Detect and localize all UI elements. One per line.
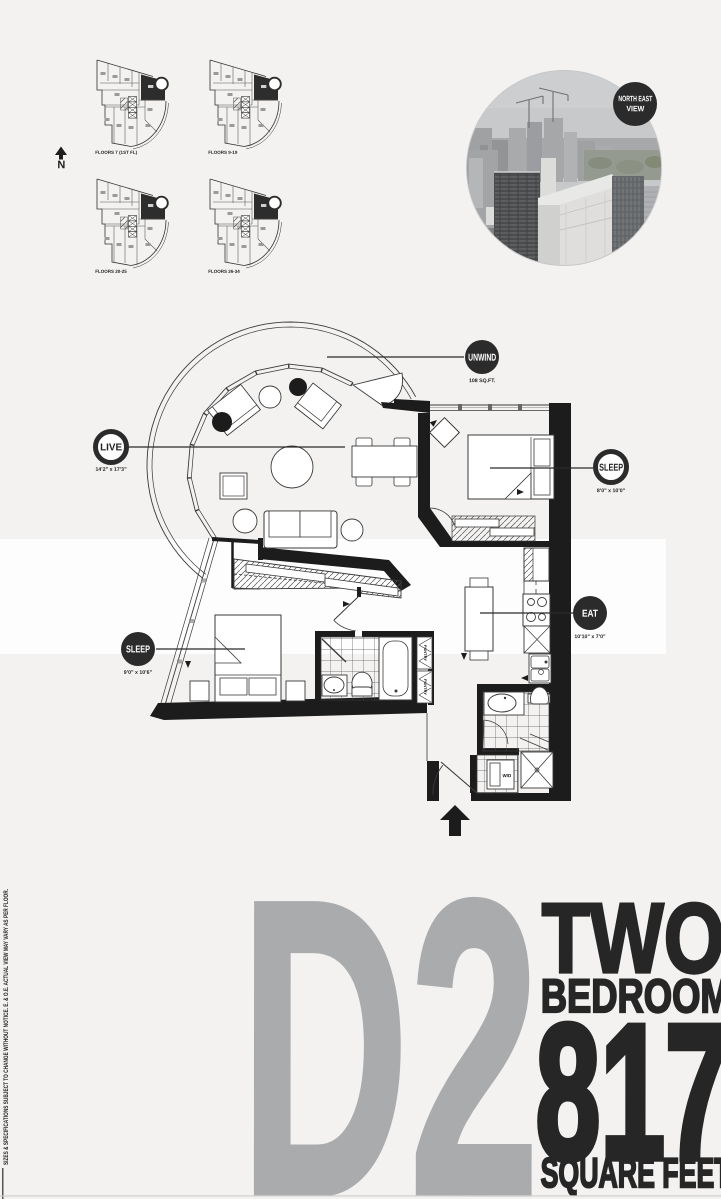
svg-text:SQUARE FEET: SQUARE FEET [541,1149,721,1196]
svg-text:FLOORS 26-34: FLOORS 26-34 [208,269,240,274]
svg-text:FLOORS 20-25: FLOORS 20-25 [95,269,127,274]
svg-text:10’10” x 7’0”: 10’10” x 7’0” [574,634,606,640]
svg-text:SLEEP: SLEEP [599,463,623,474]
svg-text:PANTRY: PANTRY [423,679,428,695]
svg-text:8’0” x 10’0”: 8’0” x 10’0” [597,488,626,494]
svg-text:LIVE: LIVE [100,442,122,453]
svg-text:D2: D2 [240,813,540,1199]
svg-text:N: N [57,159,65,171]
svg-text:FLOORS 7 (1ST FL): FLOORS 7 (1ST FL) [95,150,137,155]
svg-text:EAT: EAT [582,609,598,620]
svg-text:FLOORS 9-19: FLOORS 9-19 [208,150,238,155]
svg-text:PANTRY: PANTRY [423,645,428,661]
svg-text:SIZES & SPECIFICATIONS SUBJECT: SIZES & SPECIFICATIONS SUBJECT TO CHANGE… [3,889,10,1165]
svg-text:W/D: W/D [503,773,513,778]
svg-text:SLEEP: SLEEP [126,644,150,655]
svg-text:108 SQ.FT.: 108 SQ.FT. [469,378,496,384]
svg-text:UNWIND: UNWIND [468,353,496,364]
svg-text:VIEW: VIEW [626,104,645,113]
svg-text:9’0” x 10’6”: 9’0” x 10’6” [124,670,153,676]
svg-text:NORTH EAST: NORTH EAST [618,94,652,103]
svg-text:14’2” x 17’3”: 14’2” x 17’3” [96,467,128,473]
